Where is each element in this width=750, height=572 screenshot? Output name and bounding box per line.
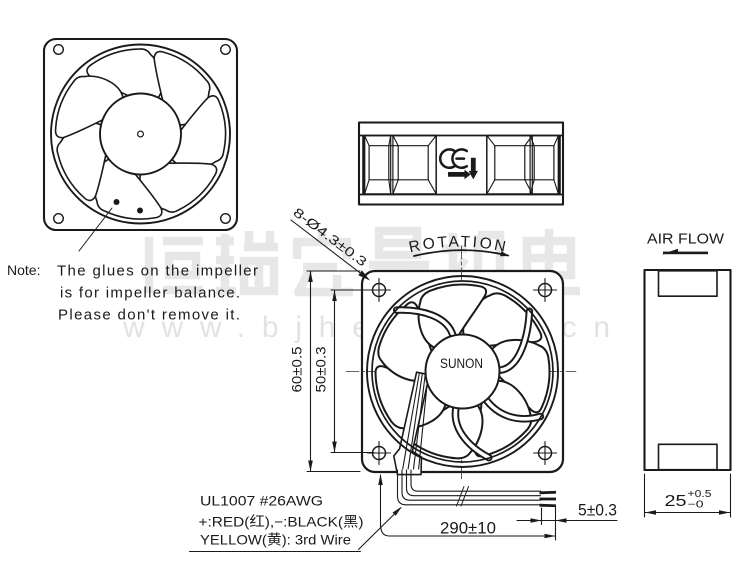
svg-text:60±0.5: 60±0.5 (289, 346, 305, 392)
svg-text:−0: −0 (688, 500, 705, 511)
svg-text:290±10: 290±10 (440, 520, 496, 538)
svg-text:UL1007 #26AWG: UL1007 #26AWG (200, 493, 323, 509)
svg-text:50±0.3: 50±0.3 (313, 346, 329, 392)
svg-text:+:RED(红),−:BLACK(黑): +:RED(红),−:BLACK(黑) (199, 514, 364, 530)
svg-text:SUNON: SUNON (440, 356, 483, 371)
svg-text:Please don't remove it.: Please don't remove it. (58, 307, 240, 324)
svg-text:The glues on the impeller: The glues on the impeller (57, 263, 258, 280)
svg-text:is for impeller balance.: is for impeller balance. (60, 285, 240, 302)
svg-text:AIR FLOW: AIR FLOW (647, 231, 725, 248)
svg-text:YELLOW(黄): 3rd Wire: YELLOW(黄): 3rd Wire (200, 532, 351, 548)
svg-text:8-Ø4.3±0.3: 8-Ø4.3±0.3 (291, 205, 370, 270)
svg-text:5±0.3: 5±0.3 (578, 502, 617, 520)
svg-text:25: 25 (665, 493, 687, 510)
svg-text:+0.5: +0.5 (688, 489, 713, 500)
svg-text:Note:: Note: (7, 262, 40, 278)
